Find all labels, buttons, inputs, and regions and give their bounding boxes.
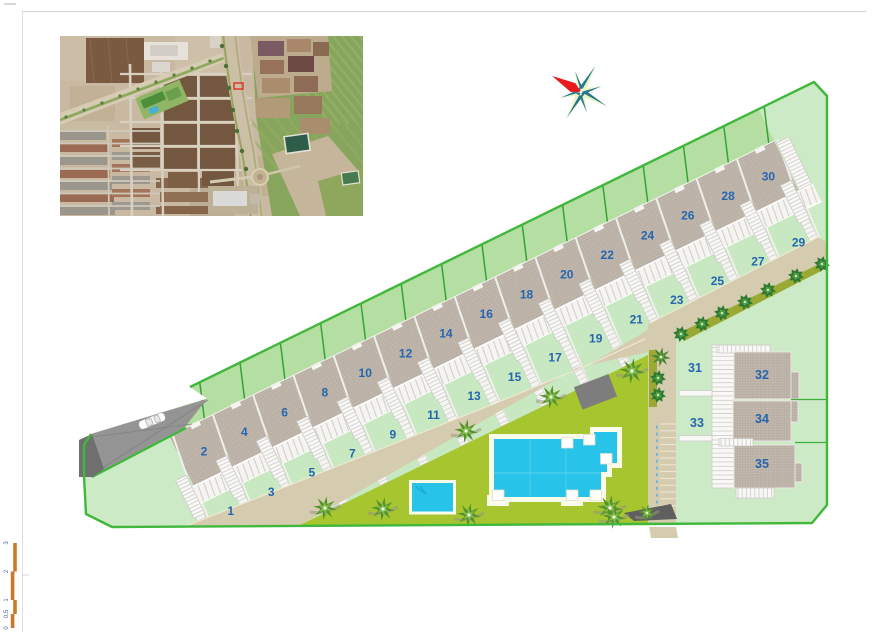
- svg-text:2: 2: [201, 445, 208, 459]
- svg-text:22: 22: [601, 248, 615, 262]
- svg-text:21: 21: [630, 312, 644, 326]
- svg-text:19: 19: [589, 331, 603, 345]
- svg-text:9: 9: [390, 427, 397, 441]
- svg-text:17: 17: [548, 351, 562, 365]
- svg-text:18: 18: [520, 287, 534, 301]
- svg-text:28: 28: [721, 189, 735, 203]
- svg-text:1: 1: [227, 504, 234, 518]
- svg-text:27: 27: [751, 255, 765, 269]
- svg-text:32: 32: [755, 368, 769, 382]
- svg-text:34: 34: [755, 412, 769, 426]
- svg-text:35: 35: [755, 457, 769, 471]
- svg-text:29: 29: [792, 236, 806, 250]
- svg-text:10: 10: [359, 366, 373, 380]
- svg-text:31: 31: [688, 361, 702, 375]
- svg-text:11: 11: [427, 408, 440, 422]
- svg-text:15: 15: [508, 370, 522, 384]
- svg-text:14: 14: [439, 327, 453, 341]
- svg-text:8: 8: [322, 386, 329, 400]
- svg-text:4: 4: [241, 425, 248, 439]
- svg-text:30: 30: [762, 169, 776, 183]
- svg-text:25: 25: [711, 274, 725, 288]
- svg-text:24: 24: [641, 228, 655, 242]
- svg-text:5: 5: [308, 466, 315, 480]
- svg-text:23: 23: [670, 293, 684, 307]
- svg-text:26: 26: [681, 209, 695, 223]
- svg-text:33: 33: [690, 416, 704, 430]
- svg-text:0.5: 0.5: [4, 609, 10, 618]
- svg-text:16: 16: [480, 307, 494, 321]
- svg-text:3: 3: [268, 485, 275, 499]
- svg-text:13: 13: [467, 389, 481, 403]
- svg-text:20: 20: [560, 268, 574, 282]
- svg-text:7: 7: [349, 446, 356, 460]
- svg-text:6: 6: [281, 405, 288, 419]
- svg-text:12: 12: [399, 346, 413, 360]
